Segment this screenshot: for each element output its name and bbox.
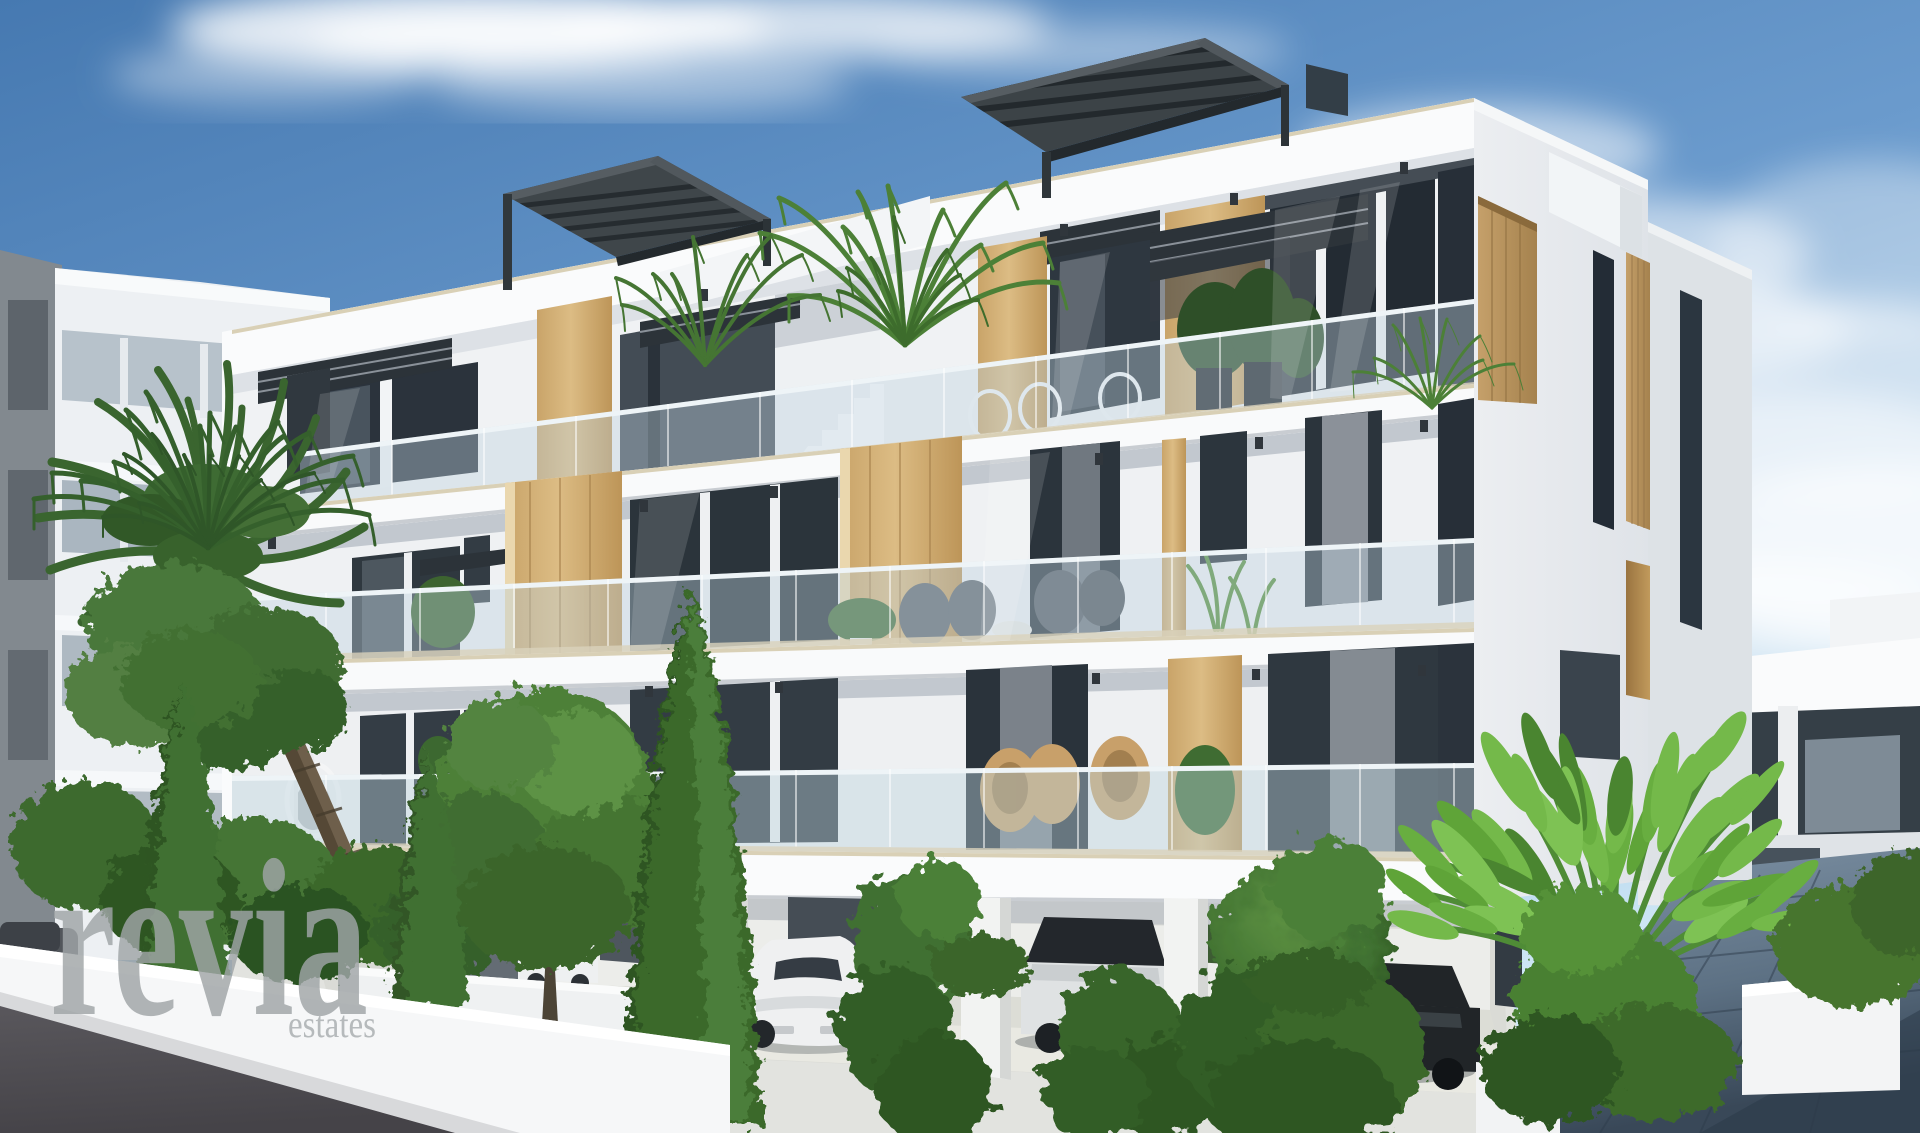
svg-text:estates: estates [288, 1004, 376, 1046]
